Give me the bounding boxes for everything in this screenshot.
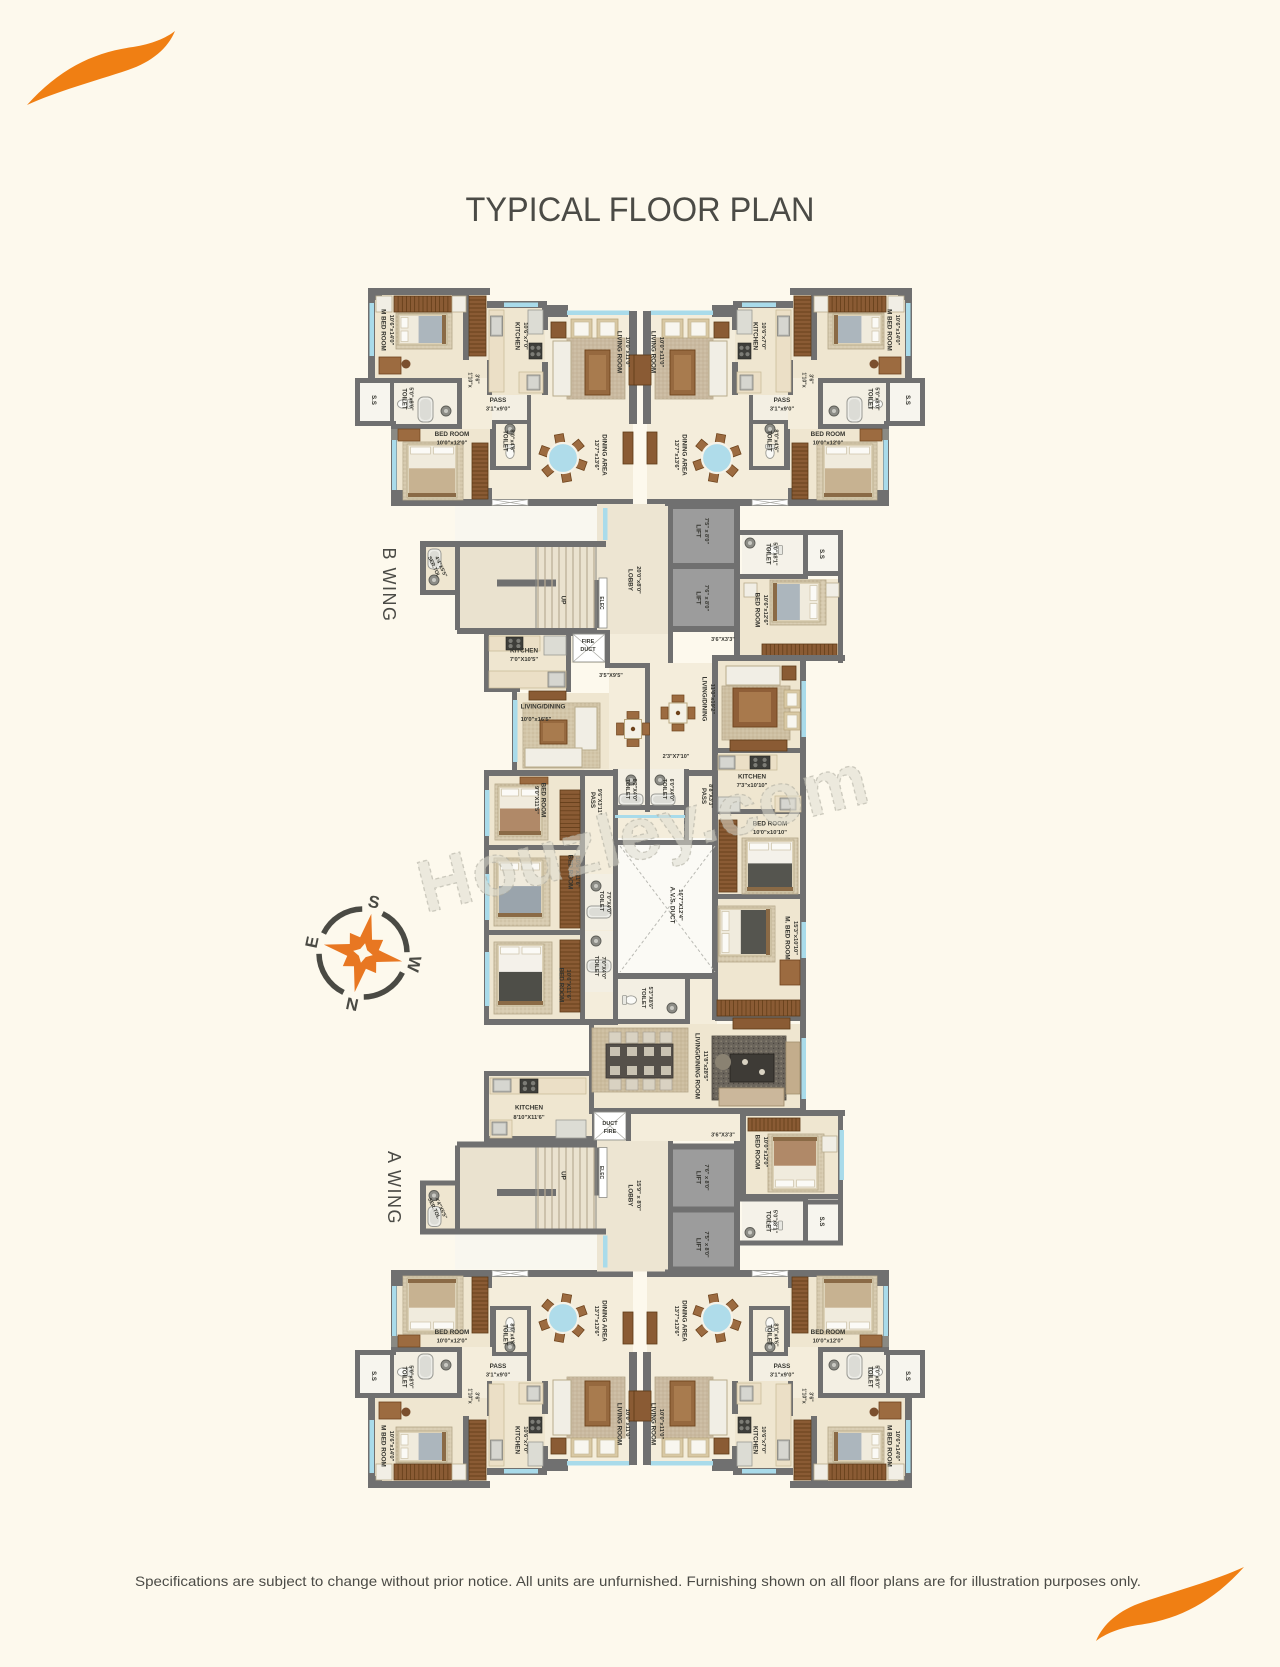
svg-text:15'3"x10'10": 15'3"x10'10" (792, 921, 798, 955)
svg-text:A WING: A WING (384, 1151, 404, 1225)
svg-text:3'6": 3'6" (474, 374, 480, 384)
svg-text:10'0"x12'0": 10'0"x12'0" (437, 1339, 468, 1345)
svg-text:13'7"x13'6": 13'7"x13'6" (593, 1306, 599, 1337)
svg-text:DUCT: DUCT (580, 647, 596, 653)
svg-text:3'1"x9'0": 3'1"x9'0" (770, 407, 795, 413)
svg-text:8'0"x4'6": 8'0"x4'6" (509, 1323, 515, 1347)
svg-text:5'0"x8'0": 5'0"x8'0" (874, 1365, 880, 1389)
svg-text:BED ROOM: BED ROOM (435, 1329, 470, 1336)
svg-text:10'0"x12'0": 10'0"x12'0" (437, 441, 468, 447)
svg-text:13'7"x13'6": 13'7"x13'6" (673, 1306, 679, 1337)
svg-text:5'0"x8'1": 5'0"x8'1" (772, 542, 778, 566)
svg-text:9'0"X11'5": 9'0"X11'5" (533, 786, 539, 814)
svg-text:PASS: PASS (774, 1363, 791, 1370)
svg-text:UP: UP (560, 596, 567, 605)
svg-text:20'0"x8'0": 20'0"x8'0" (635, 566, 641, 594)
svg-text:10'0"x11'0": 10'0"x11'0" (624, 1409, 630, 1440)
svg-text:10'0"x12'0": 10'0"x12'0" (813, 1339, 844, 1345)
svg-text:TOILET: TOILET (502, 1324, 508, 1346)
svg-text:LIVING ROOM: LIVING ROOM (616, 331, 623, 373)
svg-text:BED ROOM: BED ROOM (811, 1329, 846, 1336)
svg-text:16'7"X12'4": 16'7"X12'4" (677, 889, 683, 921)
svg-text:5'0"x8'1": 5'0"x8'1" (772, 1210, 778, 1234)
svg-text:M BED ROOM: M BED ROOM (380, 1425, 387, 1467)
svg-text:LIVING/DINING: LIVING/DINING (521, 704, 566, 711)
svg-text:5'0"x8'0": 5'0"x8'0" (408, 1365, 414, 1389)
svg-text:7'0"X4'0": 7'0"X4'0" (605, 892, 611, 915)
svg-text:3'1"x9'0": 3'1"x9'0" (486, 1373, 511, 1379)
svg-text:10'0"x11'0": 10'0"x11'0" (658, 1409, 664, 1440)
svg-text:TOILET: TOILET (598, 891, 604, 912)
svg-text:BED ROOM: BED ROOM (811, 431, 846, 438)
svg-text:TOILET: TOILET (867, 388, 873, 410)
svg-text:LIVING/DINING: LIVING/DINING (701, 677, 708, 722)
svg-text:M. BED ROOM: M. BED ROOM (784, 916, 791, 959)
svg-text:TOILET: TOILET (765, 1211, 771, 1233)
svg-text:LOBBY: LOBBY (627, 1184, 634, 1207)
svg-text:10'6"x14'0": 10'6"x14'0" (894, 1431, 900, 1462)
svg-text:3'6": 3'6" (808, 1392, 814, 1402)
svg-text:13'7"x13'6": 13'7"x13'6" (593, 440, 599, 471)
svg-text:10'6"x7'0": 10'6"x7'0" (760, 322, 766, 350)
svg-text:BED ROOM: BED ROOM (558, 968, 565, 1003)
svg-text:1'10"x: 1'10"x (801, 372, 807, 387)
svg-text:10'0"x11'0": 10'0"x11'0" (624, 337, 630, 368)
svg-text:DINING AREA: DINING AREA (681, 434, 688, 476)
svg-text:KITCHEN: KITCHEN (514, 322, 521, 350)
svg-text:3'5"X9'5": 3'5"X9'5" (599, 673, 623, 679)
svg-text:LIVING/DINING ROOM: LIVING/DINING ROOM (694, 1033, 701, 1099)
svg-text:8'0"x4'6": 8'0"x4'6" (773, 1323, 779, 1347)
svg-text:A.V.S. DUCT: A.V.S. DUCT (669, 887, 676, 924)
svg-text:7'0"X10'5": 7'0"X10'5" (510, 657, 538, 663)
svg-text:LIFT: LIFT (695, 1238, 702, 1251)
svg-text:KITCHEN: KITCHEN (752, 322, 759, 350)
svg-text:PASS: PASS (490, 1363, 507, 1370)
svg-text:11'8"x28'5": 11'8"x28'5" (702, 1051, 708, 1082)
svg-text:Specifications are subject to: Specifications are subject to change wit… (135, 1573, 1141, 1589)
svg-text:TOILET: TOILET (401, 388, 407, 410)
svg-text:LIVING ROOM: LIVING ROOM (650, 1403, 657, 1445)
svg-text:DINING AREA: DINING AREA (681, 1300, 688, 1342)
svg-text:10'6"x14'0": 10'6"x14'0" (388, 1431, 394, 1462)
svg-text:1'10"x: 1'10"x (801, 1388, 807, 1403)
svg-text:2'3"X7'10": 2'3"X7'10" (663, 754, 690, 760)
svg-text:10'6"x7'0": 10'6"x7'0" (522, 322, 528, 350)
svg-text:DUCT: DUCT (602, 1121, 618, 1127)
svg-text:S.S: S.S (904, 1371, 910, 1381)
svg-text:LOBBY: LOBBY (627, 569, 634, 592)
svg-text:5'0"x8'0": 5'0"x8'0" (874, 387, 880, 411)
svg-text:S.S: S.S (818, 1217, 824, 1227)
svg-text:ELEC: ELEC (598, 1166, 604, 1180)
svg-text:8'10"X11'6": 8'10"X11'6" (513, 1115, 544, 1121)
svg-text:S.S: S.S (904, 395, 910, 405)
svg-text:KITCHEN: KITCHEN (515, 1105, 543, 1112)
svg-text:5'0"x8'0": 5'0"x8'0" (408, 387, 414, 411)
svg-text:LIVING ROOM: LIVING ROOM (616, 1403, 623, 1445)
svg-text:BED ROOM: BED ROOM (754, 593, 761, 628)
svg-text:BED ROOM: BED ROOM (435, 431, 470, 438)
svg-text:LIFT: LIFT (695, 591, 702, 604)
svg-text:11'0"x19'2": 11'0"x19'2" (709, 684, 715, 715)
svg-text:B WING: B WING (379, 548, 399, 623)
svg-text:S.S: S.S (370, 1371, 376, 1381)
svg-text:7'6" x 8'0": 7'6" x 8'0" (703, 585, 709, 612)
svg-text:DINING AREA: DINING AREA (601, 1300, 608, 1342)
svg-text:10'0"x16'5": 10'0"x16'5" (521, 717, 552, 723)
svg-text:TOILET: TOILET (867, 1366, 873, 1388)
svg-text:1'10"x: 1'10"x (467, 1388, 473, 1403)
svg-text:KITCHEN: KITCHEN (510, 648, 538, 655)
svg-text:10'0"x12'0": 10'0"x12'0" (813, 441, 844, 447)
svg-text:M BED ROOM: M BED ROOM (886, 1425, 893, 1467)
svg-text:10'0"x11'0": 10'0"x11'0" (658, 337, 664, 368)
svg-text:5'3"X8'6": 5'3"X8'6" (647, 987, 653, 1010)
svg-text:FIRE: FIRE (582, 639, 595, 645)
svg-text:TOILET: TOILET (766, 1324, 772, 1346)
svg-text:PASS: PASS (490, 397, 507, 404)
svg-text:UP: UP (560, 1171, 567, 1180)
svg-text:10'6"x14'0": 10'6"x14'0" (894, 315, 900, 346)
svg-text:KITCHEN: KITCHEN (752, 1426, 759, 1454)
svg-text:LIFT: LIFT (695, 524, 702, 537)
svg-text:PASS: PASS (774, 397, 791, 404)
svg-text:10'6"x12'6": 10'6"x12'6" (762, 595, 768, 626)
svg-text:3'6"X3'3": 3'6"X3'3" (711, 1133, 735, 1139)
svg-text:BED ROOM: BED ROOM (754, 1135, 761, 1170)
svg-text:3'1"x9'0": 3'1"x9'0" (486, 407, 511, 413)
svg-text:TYPICAL FLOOR PLAN: TYPICAL FLOOR PLAN (466, 191, 815, 229)
svg-text:10'6"x14'0": 10'6"x14'0" (388, 315, 394, 346)
svg-text:KITCHEN: KITCHEN (514, 1426, 521, 1454)
svg-text:TOILET: TOILET (766, 430, 772, 452)
svg-text:7'5" x 8'0": 7'5" x 8'0" (703, 518, 709, 545)
svg-text:LIFT: LIFT (695, 1171, 702, 1184)
svg-text:1'10"x: 1'10"x (467, 372, 473, 387)
svg-text:7'5" x 8'0": 7'5" x 8'0" (703, 1231, 709, 1258)
svg-text:7'0"X4'0": 7'0"X4'0" (600, 957, 606, 980)
svg-text:10'6"x7'0": 10'6"x7'0" (522, 1426, 528, 1454)
svg-text:3'6": 3'6" (808, 374, 814, 384)
svg-text:S.S: S.S (818, 549, 824, 559)
svg-text:3'6": 3'6" (474, 1392, 480, 1402)
svg-text:TOILET: TOILET (502, 430, 508, 452)
svg-text:3'6"X3'3": 3'6"X3'3" (711, 637, 735, 643)
svg-text:10'6"x7'0": 10'6"x7'0" (760, 1426, 766, 1454)
svg-text:ELEC: ELEC (598, 596, 604, 610)
svg-text:TOILET: TOILET (640, 988, 646, 1009)
svg-text:TOILET: TOILET (401, 1366, 407, 1388)
svg-text:DINING AREA: DINING AREA (601, 434, 608, 476)
svg-text:FIRE: FIRE (604, 1129, 617, 1135)
svg-text:BED ROOM: BED ROOM (540, 783, 547, 818)
svg-text:M BED ROOM: M BED ROOM (380, 309, 387, 351)
svg-text:10'6"X11'6": 10'6"X11'6" (565, 969, 571, 1000)
svg-text:3'1"x9'0": 3'1"x9'0" (770, 1373, 795, 1379)
svg-text:TOILET: TOILET (765, 543, 771, 565)
svg-text:S.S: S.S (370, 395, 376, 405)
svg-text:TOILET: TOILET (593, 956, 599, 977)
svg-text:LIVING ROOM: LIVING ROOM (650, 331, 657, 373)
svg-text:10'0"x12'0": 10'0"x12'0" (762, 1137, 768, 1168)
svg-text:8'0"x4'6": 8'0"x4'6" (509, 429, 515, 453)
svg-text:7'6" x 8'0": 7'6" x 8'0" (703, 1164, 709, 1191)
svg-text:8'0"x4'6": 8'0"x4'6" (773, 429, 779, 453)
svg-text:M BED ROOM: M BED ROOM (886, 309, 893, 351)
svg-text:13'7"x13'6": 13'7"x13'6" (673, 440, 679, 471)
svg-text:15'9" x 8'0": 15'9" x 8'0" (635, 1180, 641, 1211)
